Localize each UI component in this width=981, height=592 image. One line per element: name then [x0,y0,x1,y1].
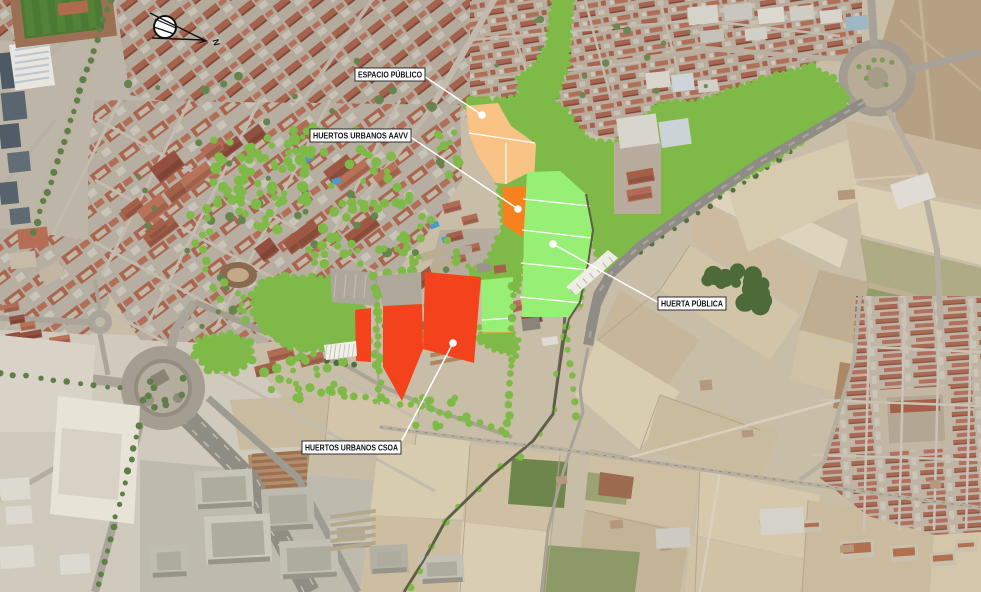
svg-text:HUERTOS URBANOS CSOA: HUERTOS URBANOS CSOA [305,443,398,453]
svg-text:HUERTA PÚBLICA: HUERTA PÚBLICA [661,298,723,309]
svg-text:ESPACIO PÚBLICO: ESPACIO PÚBLICO [358,69,422,80]
svg-text:HUERTOS URBANOS AAVV: HUERTOS URBANOS AAVV [313,131,408,141]
